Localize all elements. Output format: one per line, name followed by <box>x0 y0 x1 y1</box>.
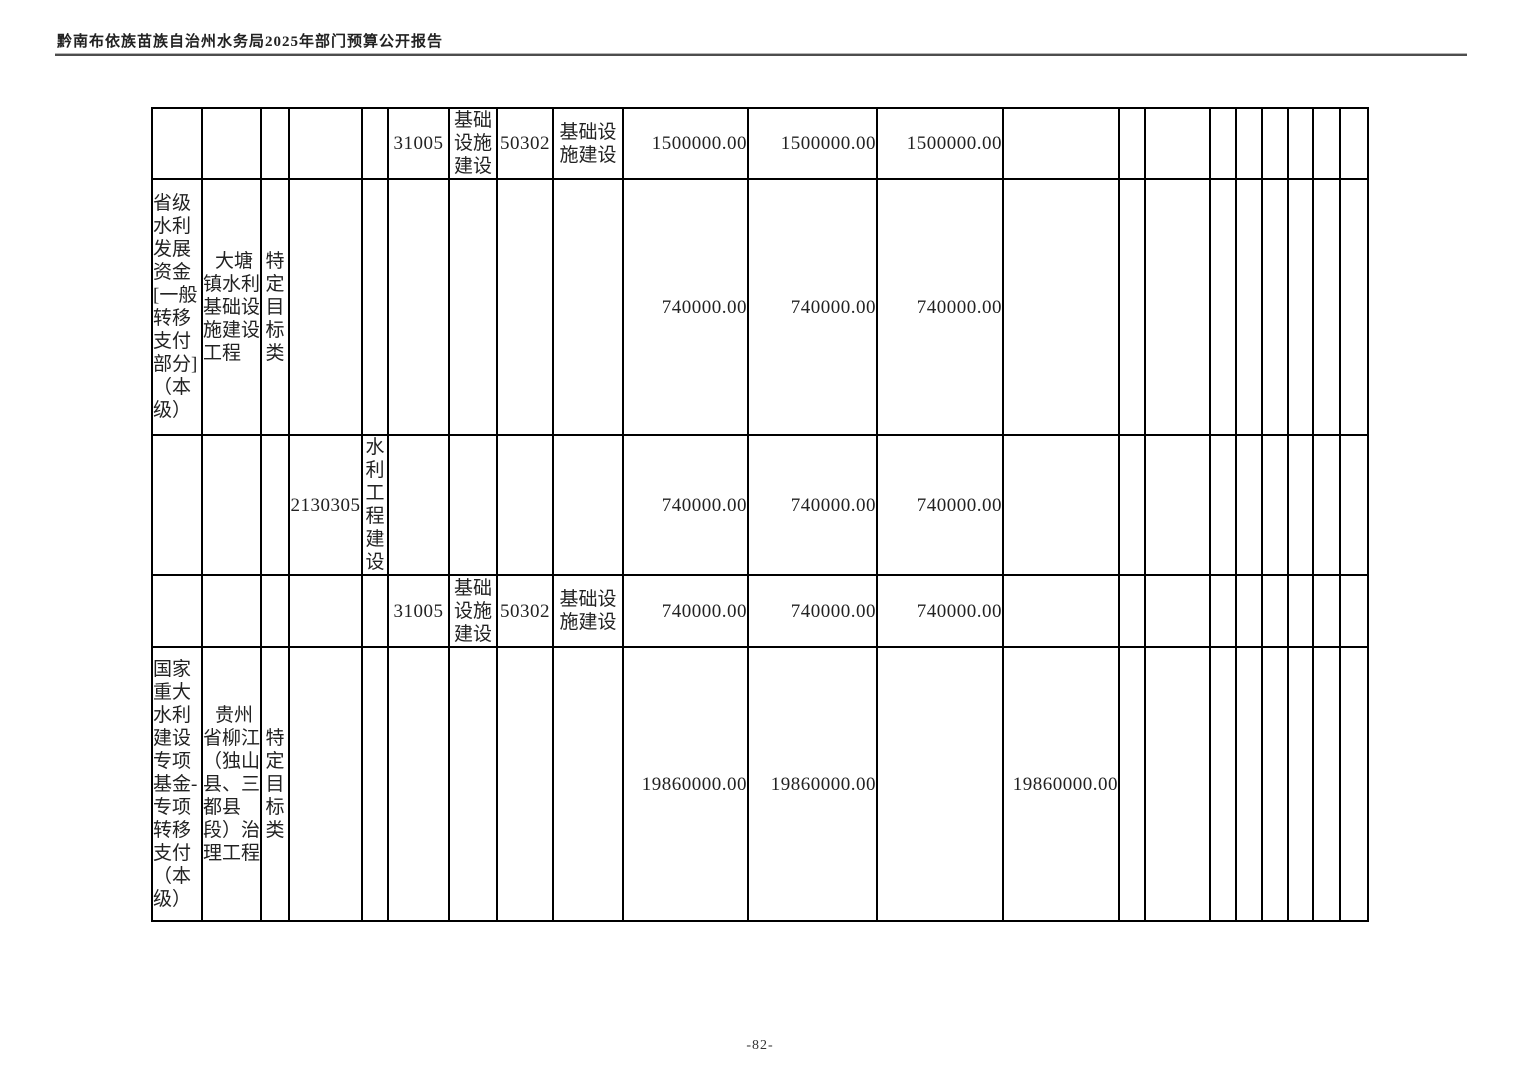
amount-cell: 1500000.00 <box>623 108 748 179</box>
empty-cell <box>1119 108 1145 179</box>
header-rule <box>55 53 1467 56</box>
amount-cell: 19860000.00 <box>623 647 748 921</box>
empty-cell <box>1313 575 1340 647</box>
function-name-cell: 水利工程建设 <box>362 435 388 575</box>
empty-cell <box>362 179 388 435</box>
economic-name-cell: 基础设施建设 <box>449 108 497 179</box>
empty-cell <box>553 435 623 575</box>
economic-name-cell: 基础设施建设 <box>449 575 497 647</box>
empty-cell <box>449 179 497 435</box>
empty-cell <box>553 179 623 435</box>
amount-cell: 740000.00 <box>623 435 748 575</box>
table-row: 31005基础设施建设50302基础设施建设740000.00740000.00… <box>152 575 1368 647</box>
empty-cell <box>1236 179 1262 435</box>
empty-cell <box>449 647 497 921</box>
empty-cell <box>1003 179 1119 435</box>
table-row: 2130305水利工程建设740000.00740000.00740000.00 <box>152 435 1368 575</box>
empty-cell <box>497 647 553 921</box>
dept-economic-code-cell: 50302 <box>497 575 553 647</box>
empty-cell <box>152 435 202 575</box>
amount-cell: 740000.00 <box>877 575 1003 647</box>
empty-cell <box>289 108 362 179</box>
empty-cell <box>1313 435 1340 575</box>
empty-cell <box>1288 647 1313 921</box>
empty-cell <box>388 179 449 435</box>
amount-cell: 740000.00 <box>623 179 748 435</box>
budget-table: 31005基础设施建设50302基础设施建设1500000.001500000.… <box>151 107 1369 922</box>
table-row: 31005基础设施建设50302基础设施建设1500000.001500000.… <box>152 108 1368 179</box>
amount-cell: 740000.00 <box>623 575 748 647</box>
amount-cell: 740000.00 <box>748 435 877 575</box>
empty-cell <box>1210 179 1236 435</box>
empty-cell <box>362 108 388 179</box>
empty-cell <box>1145 108 1210 179</box>
empty-cell <box>1340 108 1368 179</box>
empty-cell <box>1210 435 1236 575</box>
empty-cell <box>1145 647 1210 921</box>
empty-cell <box>289 647 362 921</box>
empty-cell <box>1236 108 1262 179</box>
empty-cell <box>1236 575 1262 647</box>
empty-cell <box>1236 435 1262 575</box>
amount-cell: 1500000.00 <box>877 108 1003 179</box>
empty-cell <box>1145 575 1210 647</box>
empty-cell <box>202 108 261 179</box>
empty-cell <box>362 647 388 921</box>
empty-cell <box>497 435 553 575</box>
empty-cell <box>261 435 289 575</box>
empty-cell <box>1210 647 1236 921</box>
project-type-cell: 特定目标类 <box>261 647 289 921</box>
empty-cell <box>1262 647 1288 921</box>
empty-cell <box>1313 647 1340 921</box>
empty-cell <box>497 179 553 435</box>
empty-cell <box>261 108 289 179</box>
empty-cell <box>1003 575 1119 647</box>
empty-cell <box>1262 435 1288 575</box>
empty-cell <box>1003 435 1119 575</box>
empty-cell <box>152 108 202 179</box>
empty-cell <box>1288 575 1313 647</box>
empty-cell <box>1340 179 1368 435</box>
amount-cell: 740000.00 <box>748 179 877 435</box>
dept-economic-name-cell: 基础设施建设 <box>553 575 623 647</box>
fund-name-cell: 省级水利发展资金[一般转移支付部分]（本级） <box>152 179 202 435</box>
table-row: 国家重大水利建设专项基金-专项转移支付（本级）贵州省柳江（独山县、三都县段）治理… <box>152 647 1368 921</box>
dept-economic-code-cell: 50302 <box>497 108 553 179</box>
empty-cell <box>202 435 261 575</box>
amount-cell: 740000.00 <box>877 435 1003 575</box>
empty-cell <box>1210 108 1236 179</box>
empty-cell <box>1262 179 1288 435</box>
empty-cell <box>388 647 449 921</box>
budget-table-body: 31005基础设施建设50302基础设施建设1500000.001500000.… <box>152 108 1368 921</box>
empty-cell <box>449 435 497 575</box>
empty-cell <box>1003 108 1119 179</box>
empty-cell <box>388 435 449 575</box>
empty-cell <box>1340 575 1368 647</box>
amount-cell: 740000.00 <box>877 179 1003 435</box>
amount-cell: 740000.00 <box>748 575 877 647</box>
empty-cell <box>1262 108 1288 179</box>
empty-cell <box>553 647 623 921</box>
empty-cell <box>1288 435 1313 575</box>
empty-cell <box>1119 647 1145 921</box>
empty-cell <box>1119 575 1145 647</box>
dept-economic-name-cell: 基础设施建设 <box>553 108 623 179</box>
empty-cell <box>1288 179 1313 435</box>
empty-cell <box>289 575 362 647</box>
empty-cell <box>1119 435 1145 575</box>
empty-cell <box>1340 647 1368 921</box>
page-number: -82- <box>0 1038 1520 1054</box>
function-code-cell: 2130305 <box>289 435 362 575</box>
empty-cell <box>1236 647 1262 921</box>
empty-cell <box>152 575 202 647</box>
fund-name-cell: 国家重大水利建设专项基金-专项转移支付（本级） <box>152 647 202 921</box>
empty-cell <box>1313 108 1340 179</box>
empty-cell <box>1262 575 1288 647</box>
table-row: 省级水利发展资金[一般转移支付部分]（本级）大塘镇水利基础设施建设工程特定目标类… <box>152 179 1368 435</box>
project-name-cell: 贵州省柳江（独山县、三都县段）治理工程 <box>202 647 261 921</box>
empty-cell <box>1313 179 1340 435</box>
empty-cell <box>877 647 1003 921</box>
empty-cell <box>289 179 362 435</box>
project-name-cell: 大塘镇水利基础设施建设工程 <box>202 179 261 435</box>
document-page: 黔南布依族苗族自治州水务局2025年部门预算公开报告 31005基础设施建设50… <box>0 0 1520 1074</box>
economic-code-cell: 31005 <box>388 108 449 179</box>
empty-cell <box>261 575 289 647</box>
empty-cell <box>1288 108 1313 179</box>
economic-code-cell: 31005 <box>388 575 449 647</box>
empty-cell <box>202 575 261 647</box>
amount-cell: 1500000.00 <box>748 108 877 179</box>
empty-cell <box>1210 575 1236 647</box>
empty-cell <box>1145 179 1210 435</box>
empty-cell <box>362 575 388 647</box>
amount-cell: 19860000.00 <box>1003 647 1119 921</box>
page-title: 黔南布依族苗族自治州水务局2025年部门预算公开报告 <box>57 30 443 51</box>
empty-cell <box>1145 435 1210 575</box>
amount-cell: 19860000.00 <box>748 647 877 921</box>
project-type-cell: 特定目标类 <box>261 179 289 435</box>
empty-cell <box>1119 179 1145 435</box>
empty-cell <box>1340 435 1368 575</box>
